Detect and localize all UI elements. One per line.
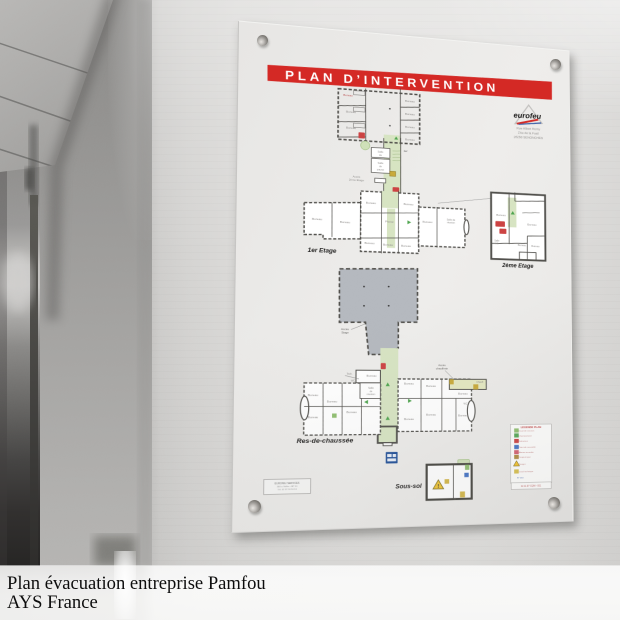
svg-text:Tech.: Tech. <box>347 373 353 376</box>
svg-text:Sous-sol: Sous-sol <box>395 483 421 490</box>
svg-text:Photoc: Photoc <box>385 220 394 224</box>
svg-text:Bureau: Bureau <box>404 202 414 206</box>
svg-text:Bureau: Bureau <box>308 415 319 419</box>
svg-text:Salle: Salle <box>494 240 500 243</box>
svg-text:Bureau: Bureau <box>346 126 356 130</box>
svg-text:Bureau: Bureau <box>364 241 374 245</box>
svg-text:Bureau: Bureau <box>383 243 393 247</box>
svg-text:de: de <box>370 390 373 393</box>
svg-text:N° Vert: N° Vert <box>517 476 524 479</box>
svg-text:Res-de-chaussée: Res-de-chaussée <box>297 438 354 445</box>
svg-text:Extincteur: Extincteur <box>519 440 528 443</box>
svg-text:Accès: Accès <box>438 363 446 367</box>
svg-text:Bureau: Bureau <box>527 223 536 227</box>
svg-text:Cheminement: Cheminement <box>519 435 532 438</box>
svg-text:eurofeu: eurofeu <box>513 111 542 121</box>
svg-text:2ème Etage: 2ème Etage <box>349 178 365 182</box>
svg-text:Bureau: Bureau <box>346 410 356 414</box>
svg-text:Accès: Accès <box>341 327 349 331</box>
svg-text:Bureau: Bureau <box>404 417 414 421</box>
svg-text:Salle: Salle <box>368 386 374 390</box>
svg-text:réunion: réunion <box>367 392 376 396</box>
svg-text:ZAe de la Fusil: ZAe de la Fusil <box>518 131 539 135</box>
svg-text:Rue Albert Remy: Rue Albert Remy <box>517 127 541 131</box>
svg-text:Bureau: Bureau <box>312 217 323 221</box>
svg-text:1er Etage: 1er Etage <box>308 247 337 254</box>
svg-text:Issue de secours: Issue de secours <box>519 430 535 433</box>
svg-text:2ème Etage: 2ème Etage <box>501 263 534 270</box>
svg-text:!: ! <box>438 484 440 490</box>
svg-text:28250 SENONCHES: 28250 SENONCHES <box>514 135 544 140</box>
svg-text:EUROFEU SERVICES: EUROFEU SERVICES <box>275 482 300 485</box>
svg-text:info: info <box>495 243 499 246</box>
svg-text:réunion: réunion <box>447 221 456 225</box>
svg-text:Bureau: Bureau <box>426 413 436 417</box>
svg-text:chaufferie: chaufferie <box>436 367 448 371</box>
svg-text:Salle: Salle <box>378 150 384 154</box>
svg-text:Bureau: Bureau <box>327 400 338 404</box>
svg-text:PLAN D’INTERVENTION: PLAN D’INTERVENTION <box>285 68 499 94</box>
svg-text:pause: pause <box>377 169 385 172</box>
svg-text:de: de <box>379 165 382 168</box>
svg-text:Bureau: Bureau <box>346 110 356 114</box>
svg-text:Bureau: Bureau <box>405 125 415 129</box>
svg-text:Bureau: Bureau <box>340 220 350 224</box>
svg-text:Chauff.: Chauff. <box>476 381 484 384</box>
svg-text:Salle: Salle <box>378 161 384 165</box>
svg-text:Bureau: Bureau <box>401 244 411 248</box>
svg-text:Bureau: Bureau <box>531 244 539 248</box>
svg-text:Bureau: Bureau <box>404 382 414 386</box>
svg-text:Bureau: Bureau <box>518 243 526 247</box>
svg-text:Alarme incendie: Alarme incendie <box>519 451 534 454</box>
svg-text:Bureau: Bureau <box>458 392 468 396</box>
svg-text:Bureau: Bureau <box>405 99 415 103</box>
svg-text:Bureau: Bureau <box>405 137 415 141</box>
svg-text:Bureau: Bureau <box>423 220 433 224</box>
svg-text:ZA La Vallée - BP 10: ZA La Vallée - BP 10 <box>277 485 298 488</box>
svg-text:Bureau: Bureau <box>426 384 436 388</box>
svg-text:Bureau: Bureau <box>308 393 319 397</box>
svg-text:Point de rassembl.: Point de rassembl. <box>519 446 536 449</box>
svg-text:Bureau: Bureau <box>496 213 506 217</box>
svg-text:de: de <box>379 154 382 157</box>
svg-text:Bureau: Bureau <box>367 374 377 378</box>
svg-text:1er: 1er <box>404 149 408 153</box>
svg-text:WC: WC <box>351 380 355 383</box>
svg-text:Bureau: Bureau <box>366 201 376 205</box>
svg-text:12.11.07 CQM - 001: 12.11.07 CQM - 001 <box>521 485 542 488</box>
svg-text:Stage: Stage <box>341 331 349 335</box>
svg-text:Bureau: Bureau <box>405 112 415 116</box>
svg-text:Danger: Danger <box>519 463 526 466</box>
svg-text:LEGENDE PLAN: LEGENDE PLAN <box>521 425 542 429</box>
svg-text:░: ░ <box>454 498 456 501</box>
svg-text:Bureau: Bureau <box>458 414 468 418</box>
svg-text:Salle de: Salle de <box>447 218 456 222</box>
svg-text:Tél. 02 37 53 53 53: Tél. 02 37 53 53 53 <box>278 489 298 491</box>
svg-text:WC: WC <box>464 403 468 406</box>
svg-text:Local technique: Local technique <box>519 470 534 473</box>
svg-text:Coupure gaz: Coupure gaz <box>519 456 532 459</box>
svg-text:Accès: Accès <box>353 175 361 179</box>
svg-text:Bureau: Bureau <box>343 93 353 97</box>
